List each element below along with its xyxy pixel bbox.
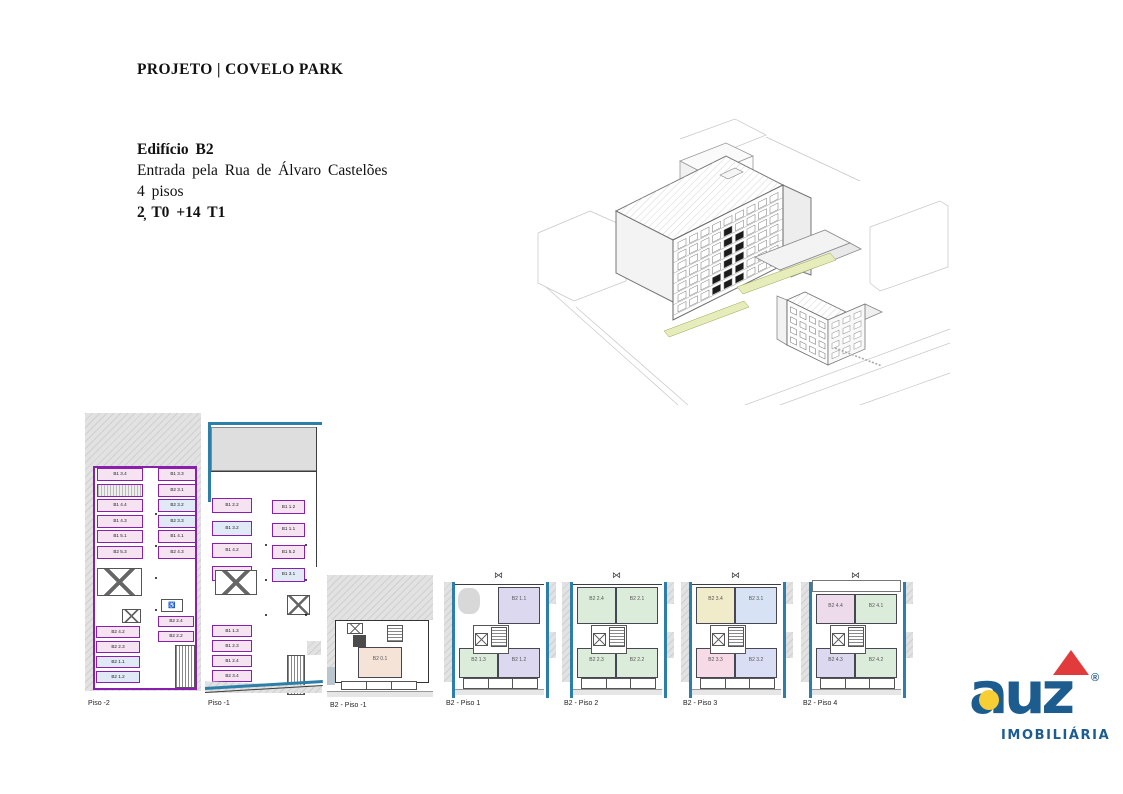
parking-stall: B1 3.3 xyxy=(158,468,196,481)
balcony-band xyxy=(463,678,538,689)
unit-room: B2 4.1 xyxy=(855,594,897,624)
parking-stall: B1 1.3 xyxy=(212,625,252,637)
site-hatch-left xyxy=(562,582,570,682)
blue-wall-left xyxy=(452,582,455,685)
sidewalk xyxy=(812,689,901,695)
stairs xyxy=(175,645,195,688)
parking-stall: B1 2.4 xyxy=(212,655,252,667)
unit-room: B2 3.1 xyxy=(735,587,777,624)
main-building xyxy=(616,156,811,320)
blue-wall-stub-right xyxy=(546,685,549,698)
parking-stall: B1 4.3 xyxy=(97,515,143,528)
site-hatch-right-bottom xyxy=(905,632,913,658)
site-hatch-left xyxy=(444,582,452,682)
top-wall xyxy=(573,584,662,585)
parking-stall: B1 4.2 xyxy=(212,543,252,558)
blue-wall-top xyxy=(208,422,322,425)
plan-caption: B2 - Piso 3 xyxy=(683,700,717,707)
blue-wall-stub-left xyxy=(809,685,812,698)
elevator-core xyxy=(353,635,366,647)
blue-wall-left xyxy=(570,582,573,685)
unit-room: B2 0.1 xyxy=(358,647,402,678)
elevator-x-box xyxy=(287,595,310,615)
site-hatch-right-top xyxy=(785,582,793,604)
unit-room: B2 3.4 xyxy=(696,587,735,624)
logo-registered-mark: ® xyxy=(1091,672,1099,684)
parking-stall xyxy=(97,484,143,497)
parking-stall: B1 5.1 xyxy=(97,530,143,543)
parking-stall: B2 3.4 xyxy=(212,670,252,682)
parking-stall: B2 3.1 xyxy=(158,484,196,497)
blue-wall-stub-right xyxy=(783,685,786,698)
floor-plan-piso-m1: B1 2.2B1 3.2B1 4.2B1 2.1B1 1.2B1 1.1B1 5… xyxy=(205,413,323,713)
setback-strip xyxy=(812,580,901,592)
plan-caption: B2 - Piso 2 xyxy=(564,700,598,707)
unit-room: B2 4.4 xyxy=(816,594,855,624)
blue-gray-box xyxy=(327,667,335,685)
building-units: 2̦ T0 +14 T1 xyxy=(137,202,387,223)
blue-wall-stub-right xyxy=(903,685,906,698)
blue-wall-right xyxy=(546,582,549,685)
floor-plan-b2-piso-m1: B2 0.1B2 - Piso -1 xyxy=(327,575,440,715)
column-dot xyxy=(265,614,267,616)
site-hatch-right-top xyxy=(666,582,674,604)
building-floors: 4 pisos xyxy=(137,181,387,202)
stairs xyxy=(609,627,625,647)
logo-sun-icon xyxy=(979,690,999,710)
ramp-x-box xyxy=(97,568,142,596)
parking-stall: B1 3.4 xyxy=(97,468,143,481)
terrace-blob xyxy=(458,588,480,614)
logo-tagline: IMOBILIÁRIA xyxy=(1001,728,1110,743)
sidewalk xyxy=(573,689,662,695)
blue-wall-right xyxy=(664,582,667,685)
balcony-band xyxy=(820,678,895,689)
column-dot xyxy=(305,579,307,581)
floor-plan-b2-piso-1: ⋈B2 1.1B2 1.3B2 1.2B2 - Piso 1 xyxy=(443,570,561,710)
plan-caption: Piso -2 xyxy=(88,700,110,707)
parking-stall: B2 2.4 xyxy=(158,616,194,627)
parking-stall: B2 3.3 xyxy=(158,515,196,528)
top-wall xyxy=(455,584,544,585)
elevator-x-box xyxy=(712,633,725,646)
parking-stall: B2 2.2 xyxy=(158,631,194,642)
building-info: Edifício B2 Entrada pela Rua de Álvaro C… xyxy=(137,139,387,223)
balcony-band xyxy=(581,678,656,689)
blue-wall-left xyxy=(809,582,812,685)
blue-wall-right xyxy=(903,582,906,685)
unit-room: B2 2.1 xyxy=(616,587,658,624)
blue-wall-right xyxy=(783,582,786,685)
floor-plan-piso-m2: B1 3.4B1 4.4B1 4.3B1 5.1B2 5.3B1 3.3B2 3… xyxy=(85,413,203,713)
presentation-slide: PROJETO | COVELO PARK Edifício B2 Entrad… xyxy=(0,0,1123,794)
wall xyxy=(211,471,317,472)
parking-stall: B2 4.3 xyxy=(158,546,196,559)
blue-wall-left xyxy=(689,582,692,685)
skylight-x-box xyxy=(347,623,363,634)
parking-stall: B1 1.2 xyxy=(272,500,305,514)
parking-stall: B1 1.1 xyxy=(272,523,305,537)
parking-stall: B2 2.3 xyxy=(96,641,140,653)
company-logo: auz ® IMOBILIÁRIA xyxy=(963,650,1123,775)
parking-stall: B2 4.2 xyxy=(96,626,140,638)
parking-stall: B2 1.1 xyxy=(96,656,140,668)
site-hatch-right-bottom xyxy=(666,632,674,658)
blue-wall-stub-left xyxy=(689,685,692,698)
parking-stall: B2 5.3 xyxy=(97,546,143,559)
stairs xyxy=(728,627,744,647)
page-title: PROJETO | COVELO PARK xyxy=(137,61,343,79)
sidewalk xyxy=(455,689,544,695)
top-wall xyxy=(692,584,781,585)
blue-wall-stub-right xyxy=(664,685,667,698)
floor-plan-b2-piso-4: ⋈B2 4.4B2 4.1B2 4.3B2 4.2B2 - Piso 4 xyxy=(800,570,918,710)
parking-stall: B1 2.3 xyxy=(212,640,252,652)
column-dot xyxy=(265,544,267,546)
site-hatch-right-top xyxy=(905,582,913,604)
building-name: Edifício B2 xyxy=(137,139,387,160)
site-hatch-right-bottom xyxy=(785,632,793,658)
blue-wall-stub-left xyxy=(452,685,455,698)
balcony-band xyxy=(700,678,775,689)
parking-stall: B1 3.2 xyxy=(212,521,252,536)
unit-room: B2 1.1 xyxy=(498,587,540,624)
parking-stall: B2 3.2 xyxy=(158,499,196,512)
upper-terrace xyxy=(211,427,317,471)
sidewalk xyxy=(327,691,433,697)
parking-stall: B1 4.4 xyxy=(97,499,143,512)
skylight-bowtie-icon: ⋈ xyxy=(612,571,621,580)
floor-plan-b2-piso-3: ⋈B2 3.4B2 3.1B2 3.3B2 3.2B2 - Piso 3 xyxy=(680,570,798,710)
elevator-x-box xyxy=(122,609,141,623)
site-hatch-left xyxy=(681,582,689,682)
stairs xyxy=(848,627,864,647)
parking-stall: B1 5.2 xyxy=(272,545,305,559)
plan-caption: B2 - Piso 1 xyxy=(446,700,480,707)
sidewalk xyxy=(692,689,781,695)
column-dot xyxy=(305,544,307,546)
ramp-x-box xyxy=(215,570,257,595)
plan-caption: Piso -1 xyxy=(208,700,230,707)
skylight-bowtie-icon: ⋈ xyxy=(731,571,740,580)
elevator-x-box xyxy=(593,633,606,646)
parking-stall: B2 1.2 xyxy=(96,671,140,683)
stairs xyxy=(387,625,403,642)
building-entrance: Entrada pela Rua de Álvaro Castelões xyxy=(137,160,387,181)
stairs xyxy=(491,627,507,647)
blue-wall-stub-left xyxy=(570,685,573,698)
site-hatch-right-top xyxy=(548,582,556,604)
parking-stall: B1 2.2 xyxy=(212,498,252,513)
plan-caption: B2 - Piso -1 xyxy=(330,702,367,709)
elevator-x-box xyxy=(832,633,845,646)
elevator-x-box xyxy=(475,633,488,646)
unit-room: B2 2.4 xyxy=(577,587,616,624)
site-hatch-top xyxy=(327,575,433,620)
parking-stall: B1 4.1 xyxy=(158,530,196,543)
site-hatch-right-bottom xyxy=(548,632,556,658)
parking-stall: B1 3.1 xyxy=(272,568,305,582)
b2-building xyxy=(777,292,882,365)
column-dot xyxy=(265,579,267,581)
side-hatch xyxy=(307,641,321,655)
plan-caption: B2 - Piso 4 xyxy=(803,700,837,707)
wall xyxy=(316,427,317,567)
skylight-bowtie-icon: ⋈ xyxy=(851,571,860,580)
front-balcony xyxy=(341,681,417,690)
accessible-parking-icon: ♿ xyxy=(161,599,183,612)
floor-plan-b2-piso-2: ⋈B2 2.4B2 2.1B2 2.3B2 2.2B2 - Piso 2 xyxy=(561,570,679,710)
site-hatch-left xyxy=(801,582,809,682)
skylight-bowtie-icon: ⋈ xyxy=(494,571,503,580)
axonometric-building-drawing xyxy=(530,105,950,405)
